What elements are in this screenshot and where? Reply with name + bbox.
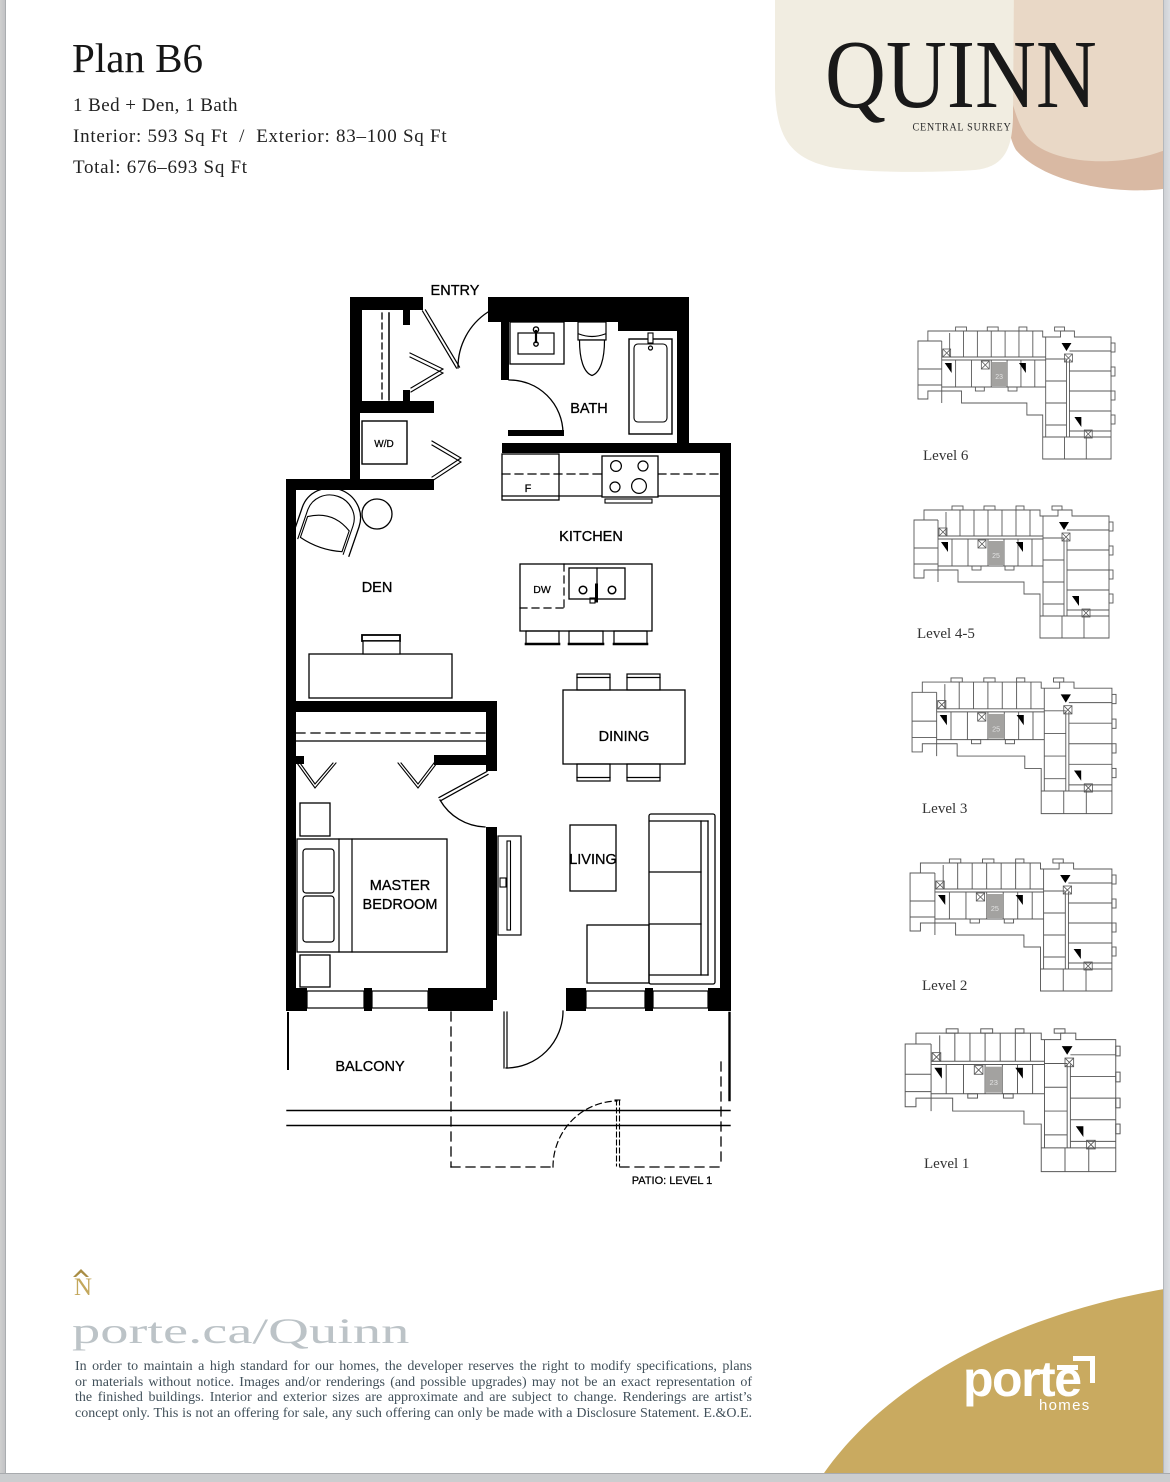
svg-text:Level 6: Level 6 xyxy=(923,448,969,464)
svg-text:CENTRAL SURREY: CENTRAL SURREY xyxy=(913,122,1012,134)
svg-text:ENTRY: ENTRY xyxy=(431,283,480,299)
svg-text:Level 1: Level 1 xyxy=(924,1156,969,1172)
svg-text:DINING: DINING xyxy=(599,729,650,745)
svg-text:DEN: DEN xyxy=(362,580,393,596)
svg-text:Level 2: Level 2 xyxy=(922,978,967,994)
svg-text:N: N xyxy=(74,1274,92,1301)
svg-text:BALCONY: BALCONY xyxy=(335,1059,405,1075)
svg-text:MASTER: MASTER xyxy=(370,878,430,894)
svg-text:BEDROOM: BEDROOM xyxy=(363,897,438,913)
svg-text:Level 4-5: Level 4-5 xyxy=(917,626,975,642)
svg-text:23: 23 xyxy=(995,374,1003,381)
svg-text:QUINN: QUINN xyxy=(825,21,1097,129)
svg-text:W/D: W/D xyxy=(374,439,393,450)
svg-text:LIVING: LIVING xyxy=(569,852,617,868)
svg-text:23: 23 xyxy=(990,1078,998,1087)
svg-text:KITCHEN: KITCHEN xyxy=(559,529,623,545)
svg-text:25: 25 xyxy=(992,725,1000,733)
svg-text:PATIO: LEVEL 1: PATIO: LEVEL 1 xyxy=(632,1175,713,1187)
svg-text:F: F xyxy=(525,483,532,495)
svg-text:DW: DW xyxy=(533,584,551,596)
svg-text:25: 25 xyxy=(991,905,999,913)
svg-text:BATH: BATH xyxy=(570,401,608,417)
svg-text:homes: homes xyxy=(1039,1397,1091,1414)
svg-text:25: 25 xyxy=(992,553,1000,560)
svg-text:Level 3: Level 3 xyxy=(922,801,967,817)
